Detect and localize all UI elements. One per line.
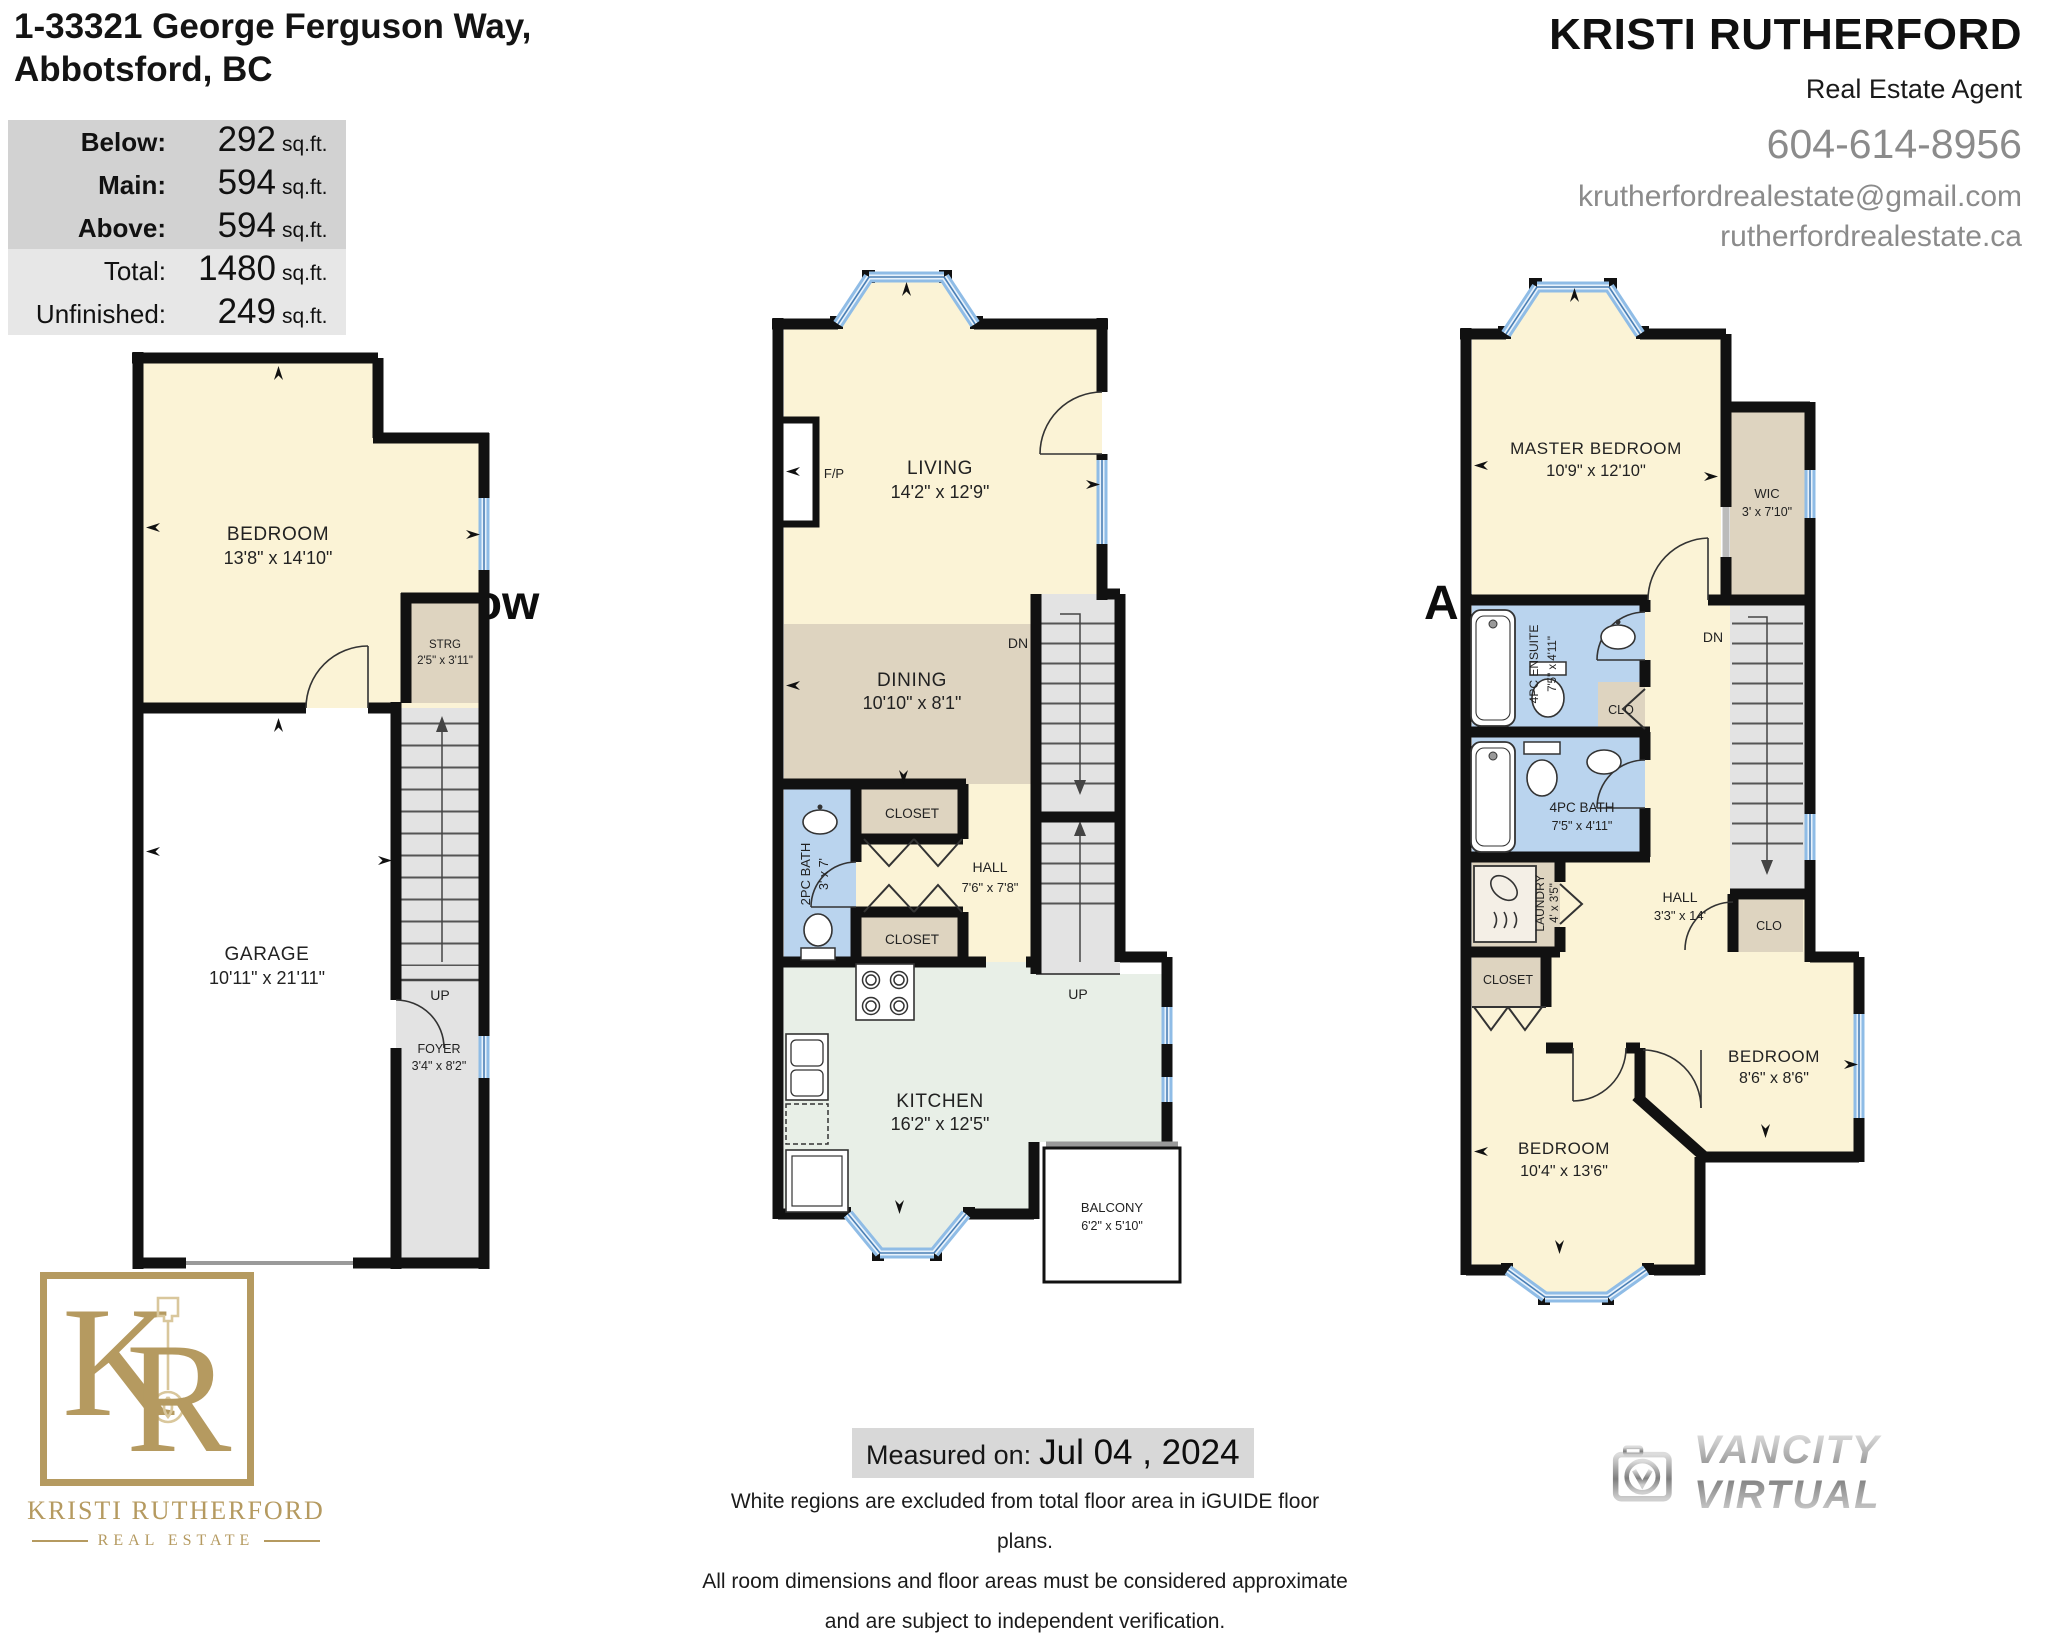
room-label: LAUNDRY <box>1533 874 1547 931</box>
logo-subtitle-text: REAL ESTATE <box>98 1532 255 1550</box>
area-summary-table: Below: 292 sq.ft. Main: 594 sq.ft. Above… <box>8 120 346 335</box>
agent-name: KRISTI RUTHERFORD <box>1549 10 2022 60</box>
room-dims: 14'2" x 12'9" <box>891 482 990 502</box>
room-dims: 8'6" x 8'6" <box>1739 1070 1809 1087</box>
vancity-virtual-label: VANCITY VIRTUAL <box>1694 1428 2048 1518</box>
row-value: 594 <box>166 163 276 203</box>
room-label: CLO <box>1608 703 1634 717</box>
room-label: 2PC BATH <box>798 843 813 906</box>
agent-title: Real Estate Agent <box>1549 74 2022 105</box>
room-dims: 10'10" x 8'1" <box>863 693 962 713</box>
measured-label: Measured on: <box>866 1440 1031 1471</box>
room-label: BEDROOM <box>1728 1047 1820 1066</box>
row-label: Below: <box>8 127 166 158</box>
room-dims: 10'4" x 13'6" <box>1520 1163 1608 1180</box>
room-label: 4PC ENSUITE <box>1527 625 1541 704</box>
stairs-dn-label: DN <box>1008 635 1028 651</box>
below-room-fills <box>138 358 484 1263</box>
address-line2: Abbotsford, BC <box>14 49 531 92</box>
stairs-dn-label: DN <box>1703 629 1723 645</box>
row-label: Total: <box>8 256 166 287</box>
room-label: CLOSET <box>885 932 939 947</box>
room-dims: 16'2" x 12'5" <box>891 1114 990 1134</box>
table-row: Above: 594 sq.ft. <box>8 206 346 249</box>
address-line1: 1-33321 George Ferguson Way, <box>14 6 531 49</box>
room-label: DINING <box>877 670 947 691</box>
room-label: CLOSET <box>885 806 939 821</box>
row-unit: sq.ft. <box>282 133 328 157</box>
disclaimer-line: All room dimensions and floor areas must… <box>700 1562 1350 1602</box>
room-dims: 13'8" x 14'10" <box>224 548 333 568</box>
table-row: Main: 594 sq.ft. <box>8 163 346 206</box>
stairs-up-label: UP <box>1068 986 1087 1002</box>
agent-logo: K R KRISTI RUTHERFORD REAL ESTATE <box>26 1268 326 1568</box>
row-label: Main: <box>8 170 166 201</box>
row-unit: sq.ft. <box>282 219 328 243</box>
room-label: STRG <box>429 639 461 651</box>
room-label: CLOSET <box>1483 973 1533 987</box>
disclaimer-line: White regions are excluded from total fl… <box>700 1482 1350 1562</box>
row-value: 594 <box>166 206 276 246</box>
room-label: HALL <box>1662 889 1697 905</box>
measured-date: Jul 04 , 2024 <box>1039 1433 1239 1473</box>
row-unit: sq.ft. <box>282 305 328 329</box>
row-value: 1480 <box>166 249 276 289</box>
room-label: LIVING <box>907 458 973 479</box>
room-label: FOYER <box>417 1042 460 1056</box>
room-label: WIC <box>1754 486 1779 501</box>
room-label: HALL <box>972 859 1007 875</box>
agent-email: krutherfordrealestate@gmail.com <box>1549 180 2022 214</box>
room-label: MASTER BEDROOM <box>1510 439 1682 458</box>
room-dims: 7'5" x 4'11" <box>1552 819 1613 833</box>
fireplace-box <box>780 420 816 524</box>
rule-line <box>264 1540 320 1542</box>
agent-website: rutherfordrealestate.ca <box>1549 220 2022 254</box>
floor-plan-main: LIVING 14'2" x 12'9" F/P DINING 10'10" x… <box>768 262 1198 1302</box>
room-dims: 3' x 7'10" <box>1742 505 1792 519</box>
room-dims: 7'6" x 7'8" <box>962 880 1019 895</box>
room-dims: 3' x 7' <box>817 858 831 890</box>
room-dims: 3'4" x 8'2" <box>412 1059 467 1073</box>
table-row: Total: 1480 sq.ft. <box>8 249 346 292</box>
table-row: Below: 292 sq.ft. <box>8 120 346 163</box>
logo-name: KRISTI RUTHERFORD <box>26 1496 326 1526</box>
floorplan-sheet: { "header": { "address_line1": "1-33321 … <box>0 0 2048 1568</box>
room-label: 4PC BATH <box>1549 800 1614 815</box>
agent-info: KRISTI RUTHERFORD Real Estate Agent 604-… <box>1549 10 2022 254</box>
logo-monogram-r: R <box>126 1320 231 1478</box>
room-label: BALCONY <box>1081 1200 1143 1215</box>
room-label: KITCHEN <box>896 1091 984 1112</box>
room-dims: 4' x 3'5" <box>1549 883 1561 923</box>
row-unit: sq.ft. <box>282 176 328 200</box>
floor-plan-above: MASTER BEDROOM 10'9" x 12'10" WIC 3' x 7… <box>1458 262 1878 1337</box>
logo-subtitle: REAL ESTATE <box>26 1532 326 1550</box>
room-dims: 3'3" x 14' <box>1654 908 1706 923</box>
floor-plan-below: BEDROOM 13'8" x 14'10" STRG 2'5" x 3'11"… <box>128 348 500 1273</box>
room-label: GARAGE <box>225 944 310 965</box>
room-dims: 10'9" x 12'10" <box>1546 462 1646 480</box>
table-row: Unfinished: 249 sq.ft. <box>8 292 346 335</box>
room-label: CLO <box>1756 919 1782 933</box>
disclaimer: White regions are excluded from total fl… <box>700 1482 1350 1642</box>
row-unit: sq.ft. <box>282 262 328 286</box>
row-value: 249 <box>166 292 276 332</box>
row-value: 292 <box>166 120 276 160</box>
camera-icon <box>1612 1441 1680 1505</box>
rule-line <box>32 1540 88 1542</box>
measured-on-badge: Measured on: Jul 04 , 2024 <box>852 1428 1254 1478</box>
stairs-up-label: UP <box>430 987 449 1003</box>
row-label: Above: <box>8 213 166 244</box>
property-address: 1-33321 George Ferguson Way, Abbotsford,… <box>14 6 531 91</box>
agent-phone: 604-614-8956 <box>1549 121 2022 168</box>
fireplace-label: F/P <box>824 466 844 481</box>
room-label: BEDROOM <box>1518 1139 1610 1158</box>
vancity-virtual-logo: VANCITY VIRTUAL <box>1612 1428 2048 1518</box>
disclaimer-line: and are subject to independent verificat… <box>700 1602 1350 1642</box>
row-label: Unfinished: <box>8 299 166 330</box>
room-dims: 6'2" x 5'10" <box>1081 1219 1143 1233</box>
room-label: BEDROOM <box>227 524 329 545</box>
room-dims: 2'5" x 3'11" <box>417 655 473 667</box>
room-dims: 7'5" x 4'11" <box>1547 636 1559 692</box>
room-dims: 10'11" x 21'11" <box>209 968 325 988</box>
